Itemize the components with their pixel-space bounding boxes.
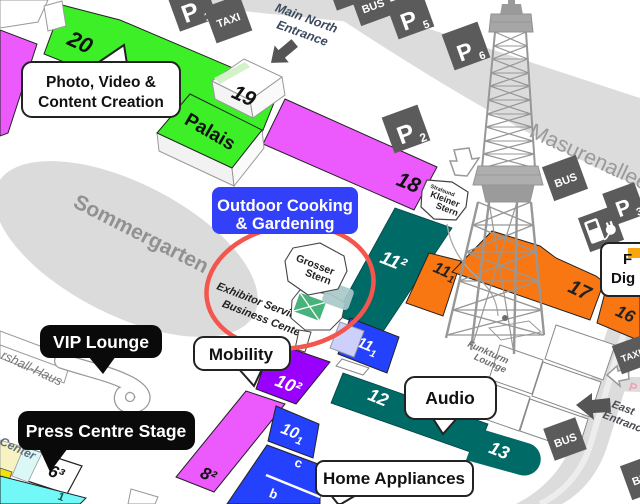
svg-text:VIP Lounge: VIP Lounge	[53, 332, 149, 352]
svg-text:Home Appliances: Home Appliances	[323, 469, 465, 488]
svg-text:Content Creation: Content Creation	[38, 94, 164, 111]
svg-text:F: F	[623, 251, 632, 268]
svg-text:Mobility: Mobility	[209, 345, 274, 364]
svg-text:Dig: Dig	[611, 270, 635, 287]
svg-text:Press Centre Stage: Press Centre Stage	[26, 421, 187, 441]
svg-text:Photo, Video &: Photo, Video &	[46, 74, 156, 91]
svg-text:& Gardening: & Gardening	[235, 215, 334, 233]
svg-text:Audio: Audio	[425, 388, 475, 408]
svg-text:Outdoor Cooking: Outdoor Cooking	[217, 197, 353, 215]
